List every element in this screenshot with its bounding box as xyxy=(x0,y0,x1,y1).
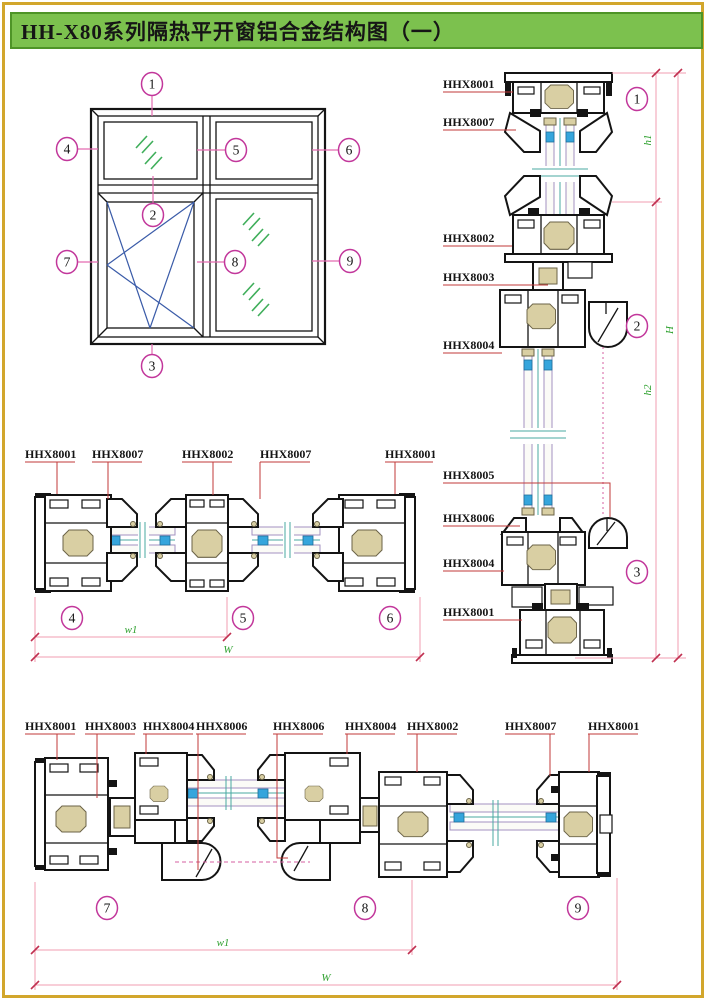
profile-transom xyxy=(505,176,612,262)
part-label: HHX8001 xyxy=(443,605,494,619)
callout-1-number: 1 xyxy=(634,92,641,107)
elevation-callouts: 1 2 3 4 5 6 7 8 9 xyxy=(57,73,361,378)
profile-sash-upper xyxy=(500,290,627,347)
part-label: HHX8003 xyxy=(443,270,494,284)
callout-3-number: 3 xyxy=(634,565,641,580)
callout-6: 6 xyxy=(339,139,360,162)
callout-2-number: 2 xyxy=(150,208,157,223)
part-label: HHX8001 xyxy=(443,77,494,91)
callout-7: 7 xyxy=(97,897,118,920)
mid-section-callouts: 4 5 6 xyxy=(62,607,401,630)
callout-4: 4 xyxy=(62,607,83,630)
glazing-bead-right xyxy=(580,113,612,152)
dim-H: H xyxy=(664,325,676,335)
dim-h1: h1 xyxy=(642,135,654,146)
glazing-unit-right xyxy=(252,522,320,558)
callout-5: 5 xyxy=(233,607,254,630)
dim-w1: w1 xyxy=(125,624,138,636)
dim-W: W xyxy=(223,644,233,656)
part-label: HHX8004 xyxy=(443,556,494,570)
mid-dimensions: w1 W xyxy=(31,597,424,662)
callout-5-number: 5 xyxy=(240,611,247,626)
part-label: HHX8003 xyxy=(85,719,136,733)
profile-casement-sash-left xyxy=(110,753,221,880)
callout-9-number: 9 xyxy=(347,254,354,269)
drawing-sheet: HH-X80系列隔热平开窗铝合金结构图（一） xyxy=(0,0,706,1000)
part-label: HHX8007 xyxy=(260,447,311,461)
callout-8: 8 xyxy=(225,251,246,274)
callout-2: 2 xyxy=(143,204,164,227)
profile-top-frame xyxy=(505,73,612,152)
callout-1-number: 1 xyxy=(149,77,156,92)
dim-W: W xyxy=(321,972,331,984)
vertical-section-callouts: 1 2 3 xyxy=(627,88,648,584)
part-label: HHX8001 xyxy=(25,447,76,461)
callout-3: 3 xyxy=(142,355,163,378)
part-label: HHX8006 xyxy=(196,719,247,733)
callout-7: 7 xyxy=(57,251,78,274)
callout-3: 3 xyxy=(627,561,648,584)
part-label: HHX8007 xyxy=(505,719,556,733)
callout-1: 1 xyxy=(627,88,648,111)
part-label: HHX8005 xyxy=(443,468,494,482)
drawing-title: HH-X80系列隔热平开窗铝合金结构图（一） xyxy=(21,16,455,46)
callout-7-number: 7 xyxy=(104,901,111,916)
part-label: HHX8007 xyxy=(443,115,494,129)
glazing-bead-left xyxy=(505,113,540,152)
callout-9-number: 9 xyxy=(575,901,582,916)
callout-8: 8 xyxy=(355,897,376,920)
horizontal-section-top-row: HHX8001 HHX8007 HHX8002 HHX8007 HHX8001 xyxy=(15,440,435,672)
callout-4-number: 4 xyxy=(64,142,71,157)
callout-2-number: 2 xyxy=(634,319,641,334)
part-label: HHX8001 xyxy=(588,719,639,733)
dim-w1: w1 xyxy=(217,937,230,949)
bottom-dimensions: w1 W xyxy=(31,878,621,990)
part-label: HHX8002 xyxy=(182,447,233,461)
callout-3-number: 3 xyxy=(149,359,156,374)
callout-8-number: 8 xyxy=(232,255,239,270)
vertical-section-drawing: HHX8001 HHX8007 HHX8002 HHX8003 HHX8004 … xyxy=(435,60,697,675)
callout-9: 9 xyxy=(568,897,589,920)
callout-5-number: 5 xyxy=(233,143,240,158)
horizontal-section-bottom-row: HHX8001 HHX8003 HHX8004 HHX8006 HHX8006 … xyxy=(15,700,695,995)
glazing-unit-bottom xyxy=(510,347,603,517)
part-label: HHX8004 xyxy=(345,719,396,733)
mid-section-labels: HHX8001 HHX8007 HHX8002 HHX8007 HHX8001 xyxy=(25,447,435,499)
profile-frame-left xyxy=(35,758,117,870)
callout-6: 6 xyxy=(380,607,401,630)
window-frame xyxy=(91,109,325,344)
callout-2: 2 xyxy=(627,315,648,338)
part-label: HHX8006 xyxy=(273,719,324,733)
profile-sash-lower xyxy=(502,518,627,585)
profile-connector-lower xyxy=(512,584,613,610)
part-label: HHX8002 xyxy=(407,719,458,733)
callout-6-number: 6 xyxy=(346,143,353,158)
title-bar: HH-X80系列隔热平开窗铝合金结构图（一） xyxy=(10,12,703,49)
dim-h2: h2 xyxy=(642,384,654,396)
part-label: HHX8007 xyxy=(92,447,143,461)
callout-8-number: 8 xyxy=(362,901,369,916)
part-label: HHX8002 xyxy=(443,231,494,245)
profile-frame-right xyxy=(313,493,415,593)
profile-bottom-frame xyxy=(512,603,612,663)
callout-5: 5 xyxy=(226,139,247,162)
hinge-profile xyxy=(589,518,627,548)
glazing-unit-fixed xyxy=(450,800,560,846)
profile-connector xyxy=(533,262,592,290)
callout-4: 4 xyxy=(57,138,78,161)
part-label: HHX8001 xyxy=(25,719,76,733)
callout-6-number: 6 xyxy=(387,611,394,626)
profile-frame-left xyxy=(35,493,137,593)
profile-mullion-center xyxy=(156,495,258,591)
window-elevation-drawing: 1 2 3 4 5 6 7 8 9 xyxy=(28,56,408,386)
bottom-section-callouts: 7 8 9 xyxy=(97,897,589,920)
part-label: HHX8004 xyxy=(143,719,194,733)
part-label: HHX8001 xyxy=(385,447,435,461)
callout-1: 1 xyxy=(142,73,163,96)
part-label: HHX8006 xyxy=(443,511,494,525)
part-label: HHX8004 xyxy=(443,338,494,352)
callout-9: 9 xyxy=(340,250,361,273)
glazing-unit-casement xyxy=(182,776,298,810)
callout-4-number: 4 xyxy=(69,611,76,626)
callout-7-number: 7 xyxy=(64,255,71,270)
profile-casement-sash-right xyxy=(258,753,380,880)
